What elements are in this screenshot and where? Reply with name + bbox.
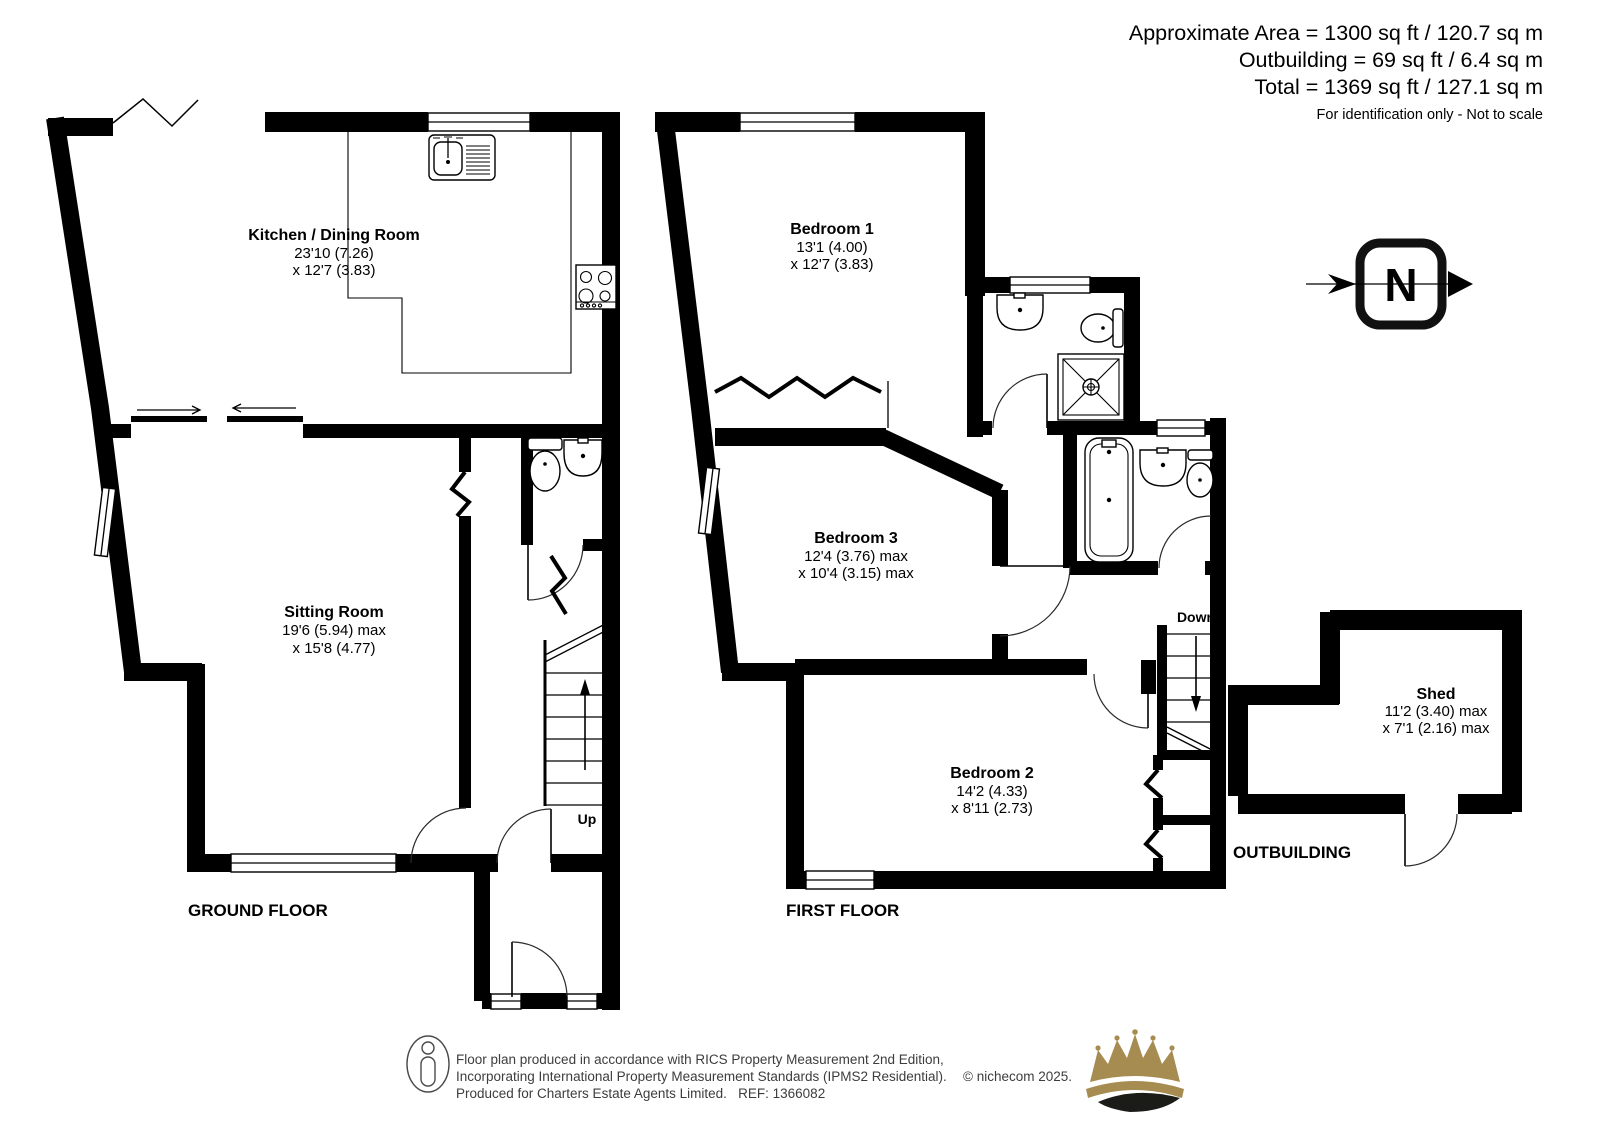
stairs-up: Up [545, 621, 611, 827]
bedroom3-dim1: 12'4 (3.76) max [804, 548, 908, 565]
stairs-up-label: Up [578, 811, 597, 827]
footer-text: Floor plan produced in accordance with R… [456, 1052, 1072, 1101]
kitchen-dim1: 23'10 (7.26) [294, 245, 374, 262]
bedroom1-dim2: x 12'7 (3.83) [791, 256, 874, 273]
sitting-dim2: x 15'8 (4.77) [293, 640, 376, 657]
kitchen-dim2: x 12'7 (3.83) [293, 262, 376, 279]
kitchen-sink-icon [429, 135, 495, 180]
bedroom2-name: Bedroom 2 [950, 765, 1034, 782]
shower-icon [1058, 354, 1124, 420]
bedroom1-name: Bedroom 1 [790, 221, 874, 238]
crown-logo [1086, 1029, 1184, 1112]
sitting-name: Sitting Room [284, 604, 384, 621]
first-floor-walls [655, 112, 1226, 880]
sitting-dim1: 19'6 (5.94) max [282, 622, 386, 639]
north-compass-icon: N [1306, 243, 1473, 325]
bathroom-basin-icon [1140, 448, 1186, 486]
bedroom2-label: Bedroom 2 14'2 (4.33) x 8'11 (2.73) [950, 765, 1034, 817]
stairs-down-label: Down [1177, 609, 1215, 625]
copyright-text: © nichecom 2025. [963, 1069, 1072, 1084]
sitting-room-label: Sitting Room 19'6 (5.94) max x 15'8 (4.7… [282, 604, 386, 657]
bedroom1-label: Bedroom 1 13'1 (4.00) x 12'7 (3.83) [790, 221, 874, 273]
footer-line2: Incorporating International Property Mea… [456, 1069, 947, 1084]
bedroom2-dim1: 14'2 (4.33) [956, 783, 1027, 800]
bedroom1-dim1: 13'1 (4.00) [796, 239, 867, 256]
ensuite-toilet-icon [1081, 309, 1123, 347]
wc-basin-icon [564, 438, 602, 476]
floorplan-page: Approximate Area = 1300 sq ft / 120.7 sq… [0, 0, 1600, 1131]
footer-line3: Produced for Charters Estate Agents Limi… [456, 1086, 825, 1101]
ground-floor-label: GROUND FLOOR [188, 901, 328, 920]
bath-icon [1085, 438, 1133, 562]
shed-label: Shed 11'2 (3.40) max x 7'1 (2.16) max [1382, 686, 1490, 737]
stairs-down: Down [1157, 609, 1218, 759]
person-icon [407, 1036, 449, 1092]
sliding-doors [131, 404, 303, 422]
kitchen-name: Kitchen / Dining Room [248, 227, 420, 244]
hob-icon [576, 265, 616, 309]
footer-line1: Floor plan produced in accordance with R… [456, 1052, 944, 1067]
shed-name: Shed [1416, 686, 1455, 703]
bedroom3-dim2: x 10'4 (3.15) max [798, 565, 914, 582]
floorplan-drawing: Approximate Area = 1300 sq ft / 120.7 sq… [0, 0, 1600, 1131]
shed-dim1: 11'2 (3.40) max [1385, 703, 1488, 720]
ground-floor-doors [411, 545, 583, 997]
bedroom3-label: Bedroom 3 12'4 (3.76) max x 10'4 (3.15) … [798, 530, 914, 582]
bedroom3-name: Bedroom 3 [814, 530, 898, 547]
identification-note: For identification only - Not to scale [1317, 107, 1543, 123]
area-summary: Approximate Area = 1300 sq ft / 120.7 sq… [1129, 21, 1543, 123]
outbuilding-label: OUTBUILDING [1233, 843, 1351, 862]
wardrobe-bifold-doors [715, 378, 888, 428]
total-area-text: Total = 1369 sq ft / 127.1 sq m [1254, 75, 1543, 99]
bedroom2-dim2: x 8'11 (2.73) [951, 800, 1033, 817]
bathroom-toilet-icon [1187, 450, 1213, 497]
kitchen-label: Kitchen / Dining Room 23'10 (7.26) x 12'… [248, 227, 420, 279]
wc-toilet-icon [528, 438, 562, 491]
approximate-area-text: Approximate Area = 1300 sq ft / 120.7 sq… [1129, 21, 1543, 45]
outbuilding-area-text: Outbuilding = 69 sq ft / 6.4 sq m [1239, 48, 1543, 72]
north-letter: N [1384, 259, 1417, 311]
shed-dim2: x 7'1 (2.16) max [1382, 720, 1490, 737]
first-floor-label: FIRST FLOOR [786, 901, 899, 920]
ensuite-basin-icon [997, 293, 1043, 330]
shed-door [1405, 814, 1457, 866]
